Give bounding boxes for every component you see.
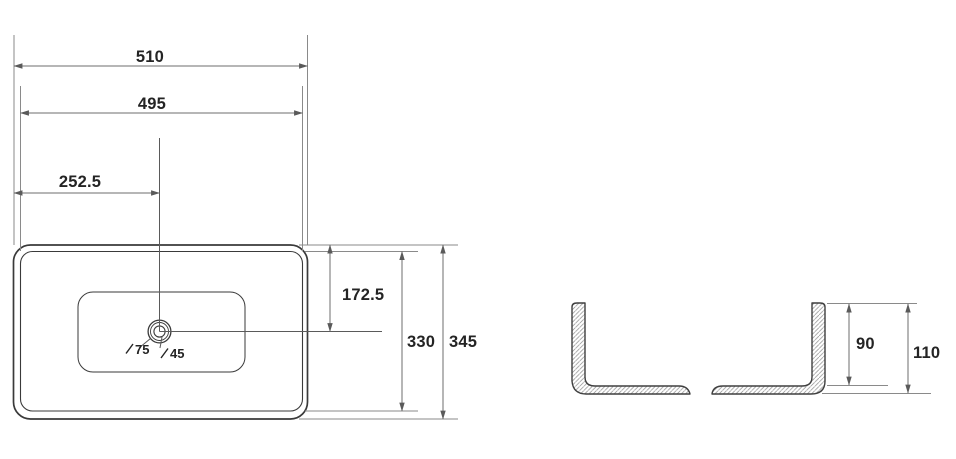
leader-slash-drain-inner (161, 349, 168, 359)
dim-label-overall-width: 510 (136, 48, 164, 66)
leader-slash-drain-outer (126, 344, 133, 354)
plan-view: 510 495 252.5 172.5 330 345 75 45 (14, 35, 478, 419)
dim-label-drain-offset-x: 252.5 (59, 173, 101, 191)
section-view: 90 110 (572, 303, 940, 394)
dim-label-drain-inner: 45 (170, 346, 184, 361)
dim-label-overall-depth: 345 (449, 333, 477, 351)
dim-label-overall-height: 110 (913, 344, 940, 362)
dim-label-rim-width: 495 (138, 95, 166, 113)
dim-label-rim-depth: 330 (407, 333, 435, 351)
section-left-wall-profile (572, 303, 690, 394)
section-right-wall-profile (712, 303, 825, 394)
dim-label-inner-depth: 90 (856, 335, 875, 353)
dim-label-drain-offset-y: 172.5 (342, 286, 384, 304)
basin-dimension-drawing: 510 495 252.5 172.5 330 345 75 45 (0, 0, 956, 459)
technical-drawing-canvas: 510 495 252.5 172.5 330 345 75 45 (0, 0, 956, 459)
dim-label-drain-outer: 75 (135, 342, 149, 357)
